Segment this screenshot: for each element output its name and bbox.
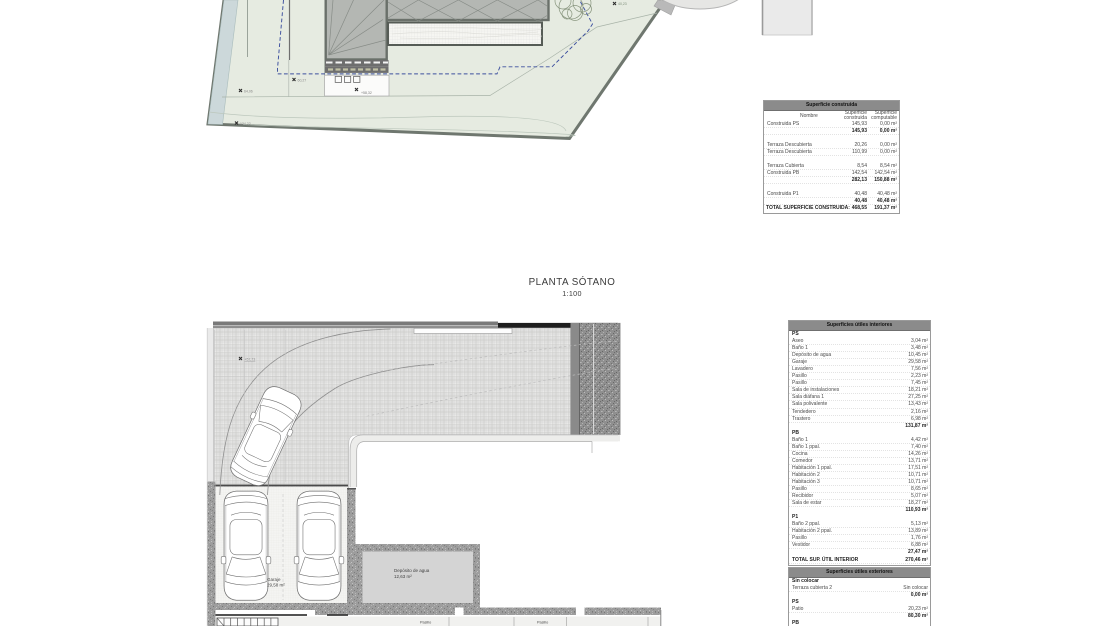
svg-text:64,06: 64,06 — [244, 90, 253, 94]
svg-text:Depósito de agua: Depósito de agua — [394, 568, 430, 573]
svg-text:29,58 m²: 29,58 m² — [267, 583, 285, 588]
svg-text:Pasillo: Pasillo — [537, 621, 548, 625]
svg-text:134,22: 134,22 — [240, 122, 251, 126]
svg-text:12,63 m²: 12,63 m² — [394, 574, 412, 579]
svg-text:Garaje: Garaje — [267, 577, 281, 582]
svg-text:+57,73: +57,73 — [245, 358, 256, 362]
svg-text:+58,32: +58,32 — [361, 91, 372, 95]
svg-text:40,23: 40,23 — [618, 2, 627, 6]
svg-text:Pasillo: Pasillo — [420, 621, 431, 625]
svg-text:60,27: 60,27 — [298, 79, 307, 83]
